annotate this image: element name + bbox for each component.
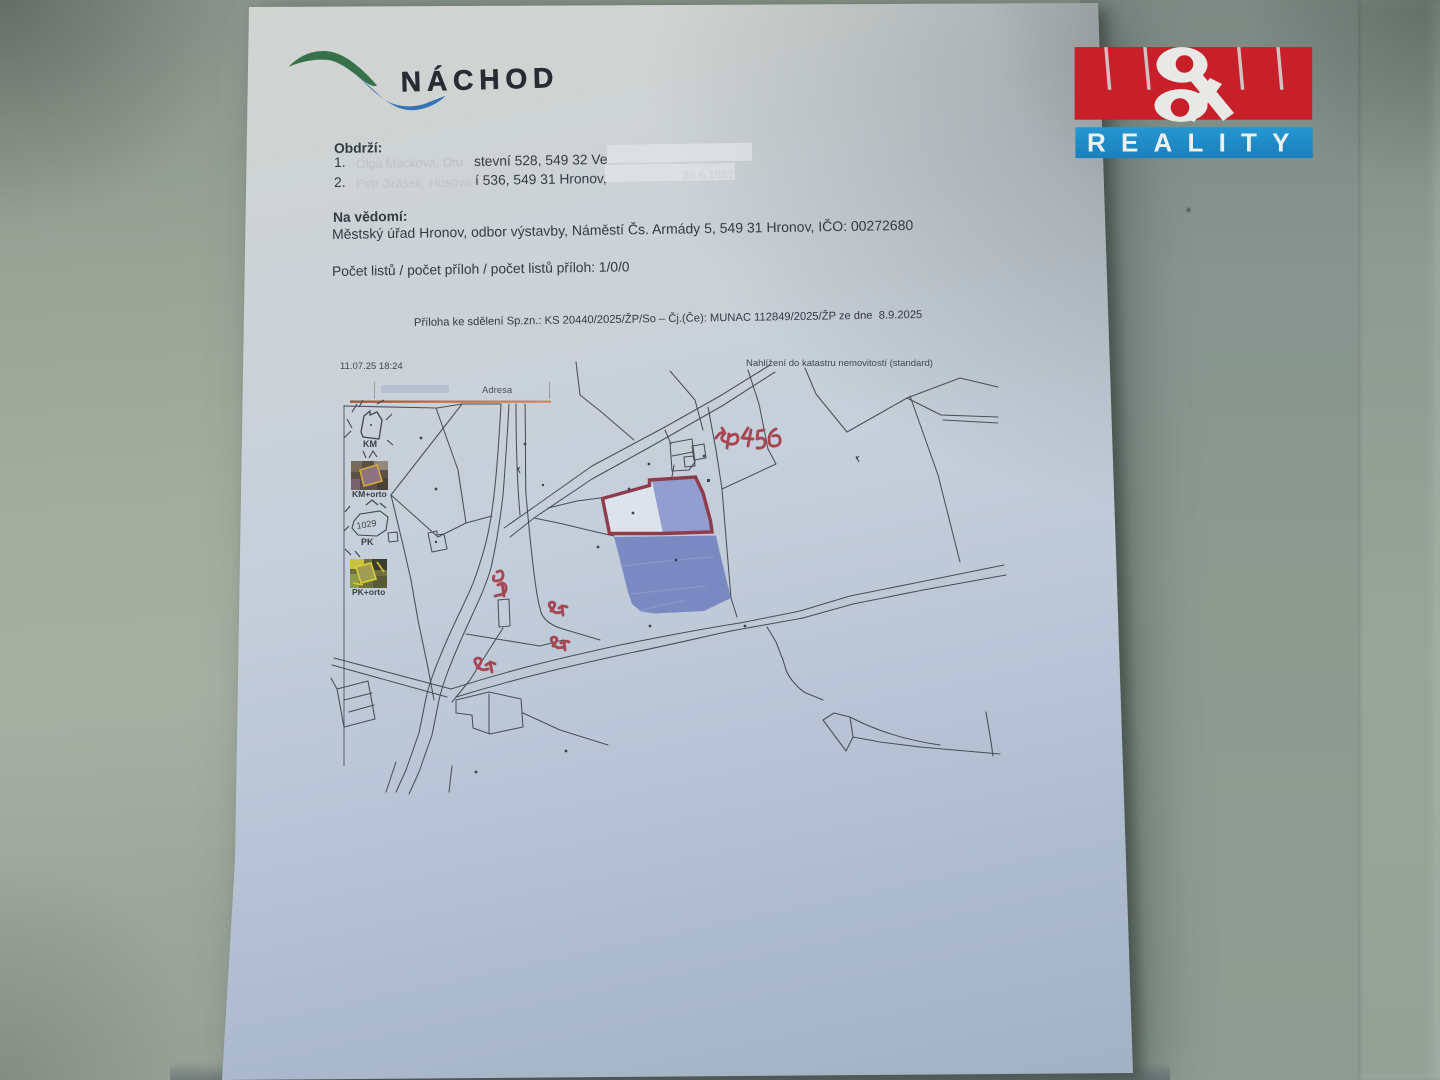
svg-text:Adresa: Adresa bbox=[482, 385, 513, 396]
svg-text:REALITY: REALITY bbox=[1087, 128, 1305, 158]
svg-text:KM+orto: KM+orto bbox=[352, 489, 387, 499]
svg-text:PK+orto: PK+orto bbox=[352, 587, 385, 597]
svg-text:NÁCHOD: NÁCHOD bbox=[400, 61, 559, 97]
svg-text:1029: 1029 bbox=[356, 518, 377, 531]
svg-text:PK: PK bbox=[361, 537, 374, 547]
svg-text:11.07.25 18:24: 11.07.25 18:24 bbox=[340, 361, 403, 372]
svg-text:KM: KM bbox=[363, 439, 377, 449]
svg-text:Nahlížení do katastru nemovito: Nahlížení do katastru nemovitostí (stand… bbox=[746, 358, 933, 369]
